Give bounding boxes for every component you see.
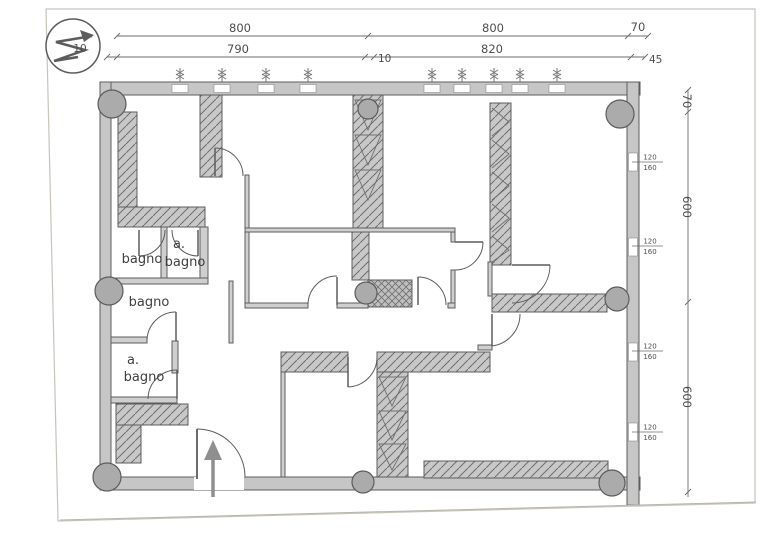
bagni-bottom-wall [111, 278, 208, 284]
column [352, 471, 374, 493]
abagno-lower-bottom-wall [111, 397, 177, 403]
window-dimension-tick-icon [516, 68, 524, 82]
room-label-abagno-bottom-l1: a. [127, 353, 139, 368]
abagno-lower-top-wall [111, 337, 147, 343]
step-wall [478, 345, 492, 350]
hatched-wall-bagni-top [118, 207, 205, 227]
svg-text:160: 160 [643, 434, 656, 442]
window-dimension-tick-icon [490, 68, 498, 82]
column [606, 100, 634, 128]
window-dimension-tick-icon [304, 68, 312, 82]
dim-top2-10-left: 10 [73, 43, 86, 55]
door-central-to-right-room [455, 242, 483, 270]
floor-plan-drawing: 800 800 70 10 790 10 820 45 70 600 600 [0, 0, 763, 540]
window-dimension-tick-icon [428, 68, 436, 82]
hatched-wall-corridor-right [377, 352, 490, 372]
right-wall [627, 82, 639, 505]
svg-text:160: 160 [643, 164, 656, 172]
svg-text:160: 160 [643, 248, 656, 256]
hatched-strip-center [352, 232, 369, 280]
dim-top-800-right: 800 [482, 21, 504, 35]
window-dim-ticks [176, 68, 561, 82]
room-label-abagno-top-l2: bagno [165, 255, 206, 270]
hatched-wall-corridor-left [281, 352, 348, 372]
central-room-bottom-wall-c [448, 303, 455, 308]
scan-edge-line [60, 502, 756, 520]
passage-wall [488, 262, 492, 296]
hatched-wall-bottom-left-v [116, 425, 141, 463]
dim-right-600-upper: 600 [680, 196, 694, 218]
floor-plan-page: 800 800 70 10 790 10 820 45 70 600 600 [0, 0, 763, 540]
svg-text:120: 120 [643, 343, 656, 351]
door-abagno-lower-top [147, 312, 176, 341]
dim-top2-820: 820 [481, 42, 503, 56]
hatched-wall-right-vertical [490, 103, 511, 265]
column [599, 470, 625, 496]
window-dimension-tick-icon [553, 68, 561, 82]
abagno-lower-right-wall [172, 341, 178, 373]
window-dimension-tick-icon [458, 68, 466, 82]
central-room-right-wall-a [451, 232, 455, 242]
dimension-row-1 [114, 33, 651, 39]
hatched-wall-bottom-left-h [116, 404, 188, 425]
window-dimension-tick-icon [218, 68, 226, 82]
column [358, 99, 378, 119]
lower-left-room-wall [281, 372, 285, 477]
column [98, 90, 126, 118]
mid-left-wall [229, 281, 233, 343]
central-room-left-wall [245, 175, 249, 307]
room-label-bagno-top: bagno [122, 252, 163, 267]
column [605, 287, 629, 311]
door-central-room-left [308, 276, 337, 305]
column [355, 282, 377, 304]
hatched-wall-right-horizontal [492, 294, 607, 312]
room-label-bagno-mid: bagno [129, 295, 170, 310]
hatched-wall-bottom-right [424, 461, 608, 478]
central-room-right-wall-b [451, 270, 455, 307]
central-room-top-wall [245, 228, 455, 232]
door-corridor [348, 357, 377, 387]
dim-top2-45: 45 [649, 54, 662, 66]
room-label-abagno-top-l1: a. [173, 237, 185, 252]
hatched-shaft-bottom-center [377, 372, 408, 477]
dim-right-600-lower: 600 [680, 386, 694, 408]
svg-text:120: 120 [643, 238, 656, 246]
svg-text:120: 120 [643, 424, 656, 432]
column [95, 277, 123, 305]
window-dimension-tick-icon [262, 68, 270, 82]
dim-top-70: 70 [631, 20, 646, 34]
door-passage-right [492, 314, 520, 346]
dim-top-800-left: 800 [229, 21, 251, 35]
room-label-abagno-bottom-l2: bagno [124, 370, 165, 385]
window-dimension-tick-icon [176, 68, 184, 82]
central-room-bottom-wall-a [245, 303, 308, 308]
hatched-pier-topleft [200, 95, 222, 177]
door-central-room-right [418, 277, 446, 305]
hatched-wall-left-vertical [118, 112, 137, 210]
svg-text:120: 120 [643, 154, 656, 162]
dim-top2-790: 790 [227, 42, 249, 56]
dimension-row-2 [104, 54, 648, 60]
dimension-right-column [685, 87, 691, 497]
dim-top2-10-mid: 10 [378, 53, 391, 65]
svg-text:160: 160 [643, 353, 656, 361]
dim-right-70: 70 [680, 94, 694, 109]
column [93, 463, 121, 491]
